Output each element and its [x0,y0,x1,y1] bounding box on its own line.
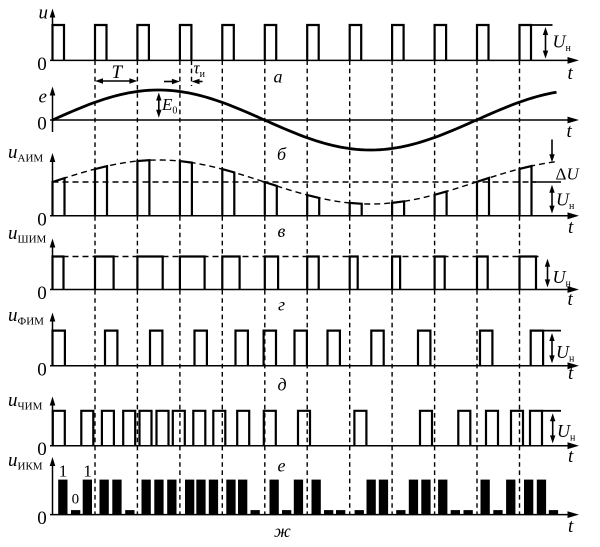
svg-text:0: 0 [72,492,80,508]
svg-text:0: 0 [37,54,47,75]
svg-text:ΔU: ΔU [556,165,581,184]
svg-text:е: е [278,456,286,476]
svg-text:t: t [568,516,574,537]
svg-text:в: в [278,221,286,241]
svg-text:u: u [39,3,49,24]
svg-text:г: г [278,295,285,315]
svg-text:t: t [568,446,574,467]
svg-text:t: t [568,63,574,84]
svg-text:t: t [568,289,574,310]
svg-text:T: T [112,62,124,83]
svg-text:б: б [277,144,287,164]
svg-text:0: 0 [37,114,47,135]
svg-text:1: 1 [59,462,68,481]
svg-text:1: 1 [83,462,92,481]
svg-text:0: 0 [37,283,47,304]
svg-text:0: 0 [37,209,47,230]
svg-text:0: 0 [37,508,47,529]
svg-text:а: а [274,67,283,87]
svg-text:0: 0 [37,439,47,460]
svg-text:t: t [568,363,574,384]
svg-text:ж: ж [274,521,291,541]
svg-text:e: e [39,87,47,108]
svg-text:t: t [568,217,574,238]
svg-text:д: д [278,375,287,395]
svg-text:0: 0 [37,359,47,380]
svg-text:t: t [567,121,573,142]
